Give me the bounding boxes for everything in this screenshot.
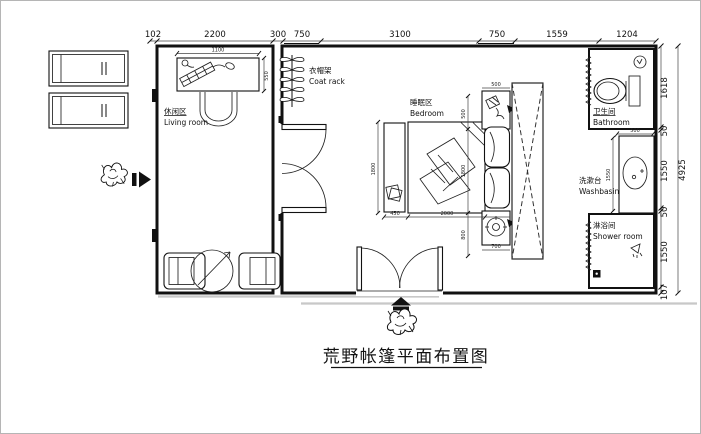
nightstand-top [482,91,510,129]
floor-plan-drawing: 102 2200 300 750 3100 750 1559 1204 1618… [1,1,701,434]
dim-basin-length: 1550 [606,169,612,182]
label-washbasin-en: Washbasin [579,187,620,196]
double-door-left [282,125,326,213]
dim-bed-length: 2000 [441,211,454,217]
dim-lamp-table: 700 [491,244,501,250]
dim-counter-width: 500 [630,128,640,134]
dim-desk-depth: 550 [264,71,270,81]
dim-head-shelf-top: 500 [491,82,501,88]
floor-drain-hole [596,273,598,275]
lounge-chair-2 [49,93,128,128]
pillow [485,127,510,167]
door-hinge [279,116,284,123]
dim-right-1: 50 [660,126,670,137]
dim-right-5: 107 [660,284,670,300]
lounge-chair-1 [49,51,128,86]
dim-right-total: 4925 [678,159,688,181]
dim-right-4: 1550 [660,241,670,263]
label-bathroom-en: Bathroom [593,118,630,127]
label-coat-rack-en: Coat rack [309,77,346,86]
dim-top-1: 2200 [204,30,226,40]
wardrobe [512,83,543,259]
label-bathroom-zh: 卫生间 [593,106,616,116]
bench [384,123,405,212]
decorative-sketch-bottom [387,309,416,335]
shower-head [631,244,642,258]
dim-bench-width: 450 [390,211,400,217]
drawing-title: 荒野帐篷平面布置图 [323,347,490,368]
dim-head-shelf: 500 [461,109,467,119]
page-title: 荒野帐篷平面布置图 [323,347,490,367]
label-bedroom-zh: 睡眠区 [410,98,433,107]
entrance-arrow-bottom [391,297,411,311]
ceiling-light [634,56,646,68]
desk: 1100 550 [175,48,270,94]
dim-right-0: 1618 [660,77,670,99]
shower-room: 淋浴间 Shower room [586,214,654,288]
dim-desk-width: 1100 [212,48,225,54]
dim-bed-width-2: 1800 [461,165,467,178]
label-shower-en: Shower room [593,232,643,241]
toilet [594,76,640,106]
label-washbasin-zh: 洗漱台 [579,175,602,185]
washbasin: 1550 洗漱台 Washbasin [579,136,654,213]
decorative-sketch-left [101,163,127,186]
pillow [485,168,510,208]
label-bedroom-en: Bedroom [410,109,444,118]
wall-sconce [152,89,157,102]
entrance-arrow-left [132,172,151,188]
label-living-room-zh: 休闲区 [164,106,187,116]
dim-top-5: 750 [489,30,505,40]
dim-top-2: 300 [270,30,286,40]
bedroom: 睡眠区 Bedroom [371,82,543,259]
dim-right-3: 50 [660,207,670,218]
ceiling-light-marks [637,59,642,64]
dim-top-6: 1559 [546,30,568,40]
coat-rack [280,55,304,107]
armchair-right [239,253,280,289]
top-dimension-chain: 102 2200 300 750 3100 750 1559 1204 [145,30,659,44]
dim-right-2: 1550 [660,160,670,182]
floor-plan-sheet: 102 2200 300 750 3100 750 1559 1204 1618… [0,0,701,434]
wall-sconce [152,229,157,242]
door-hinge [279,214,284,221]
dim-bed-width: 1800 [371,163,377,176]
dim-foot-gap: 800 [461,230,467,240]
double-door-bottom [357,247,443,291]
living-room: 1100 550 休闲区 Living room [152,46,280,293]
label-coat-rack-zh: 衣帽架 [309,65,332,75]
label-shower-zh: 淋浴间 [593,220,616,230]
bed [408,122,485,213]
dim-top-7: 1204 [616,30,638,40]
bathroom: 卫生间 Bathroom 500 [586,49,655,137]
right-dimension-chain: 1618 50 1550 50 1550 107 4925 [659,44,689,301]
dim-top-0: 102 [145,30,161,40]
label-living-room-en: Living room [164,118,208,127]
dim-top-3: 750 [294,30,310,40]
dim-top-4: 3100 [389,30,411,40]
main-tent: 衣帽架 Coat rack 睡眠区 Bedroom [279,44,657,297]
